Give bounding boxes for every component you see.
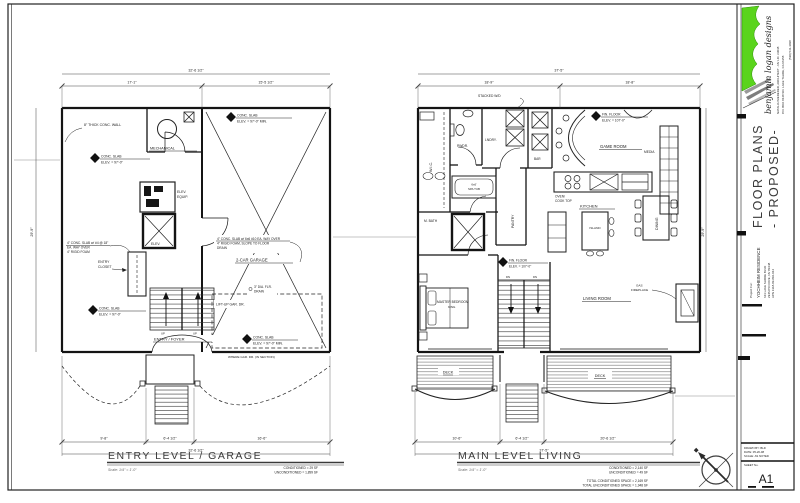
- label-slab1-title: CONC. SLAB: [101, 155, 122, 159]
- island: ISLAND: [582, 212, 614, 256]
- main-area-4: TOTAL UNCONDITIONED SPACE = 1,948 SF: [582, 484, 648, 488]
- sheet-canvas: benjamin logan designs NATALIA WIEDERER,…: [0, 0, 800, 503]
- project-name: YOCHHEIM RESIDENCE: [756, 247, 761, 298]
- label-garage-note3: DRAIN: [217, 246, 228, 250]
- sheet-number: A1: [759, 472, 774, 486]
- label-stair-fin2: ELEV. = 107'-0": [509, 265, 531, 269]
- sink-icon: [463, 110, 473, 117]
- master-bedroom: MASTER BEDROOM KING: [419, 274, 469, 340]
- firm-credit: NATALIA WIEDERER, ARCHITECT - NV LIC. #3…: [776, 46, 780, 114]
- footer-mark-1: [748, 486, 756, 488]
- entry-level-plan: MECHANICAL ELEV. EQUIP. ELEV. ENTRY CLOS…: [30, 69, 344, 475]
- label-oven1: OVEN/: [555, 195, 565, 199]
- deck-left: DECK: [412, 356, 497, 400]
- nightstand-2: [419, 332, 427, 340]
- firm-address: P.O. BOX 8448 SO. LAKE TAHOE, CA 96158: [781, 55, 785, 114]
- north-arrow-icon: [694, 448, 733, 487]
- main-plan-title: MAIN LEVEL LIVING Scale: 1/4" = 1'-0" CO…: [457, 450, 700, 488]
- main-elevator: [452, 214, 484, 250]
- entry-closet: ENTRY CLOSET: [98, 252, 146, 296]
- main-dim-side: 29'-9": [701, 227, 705, 237]
- slab-flag-2-diamond: [88, 305, 98, 315]
- main-plan-dimensions: [413, 74, 707, 456]
- divider-tick-1: [737, 114, 746, 119]
- powder-room: PWDR.: [450, 110, 473, 148]
- label-slab2-title: CONC. SLAB: [99, 307, 120, 311]
- label-fin-floor2: ELEV. = 107'-0": [602, 119, 626, 123]
- cooktop-icon: [565, 176, 580, 190]
- label-pwdr: PWDR.: [457, 144, 468, 148]
- equip-block-1: [144, 186, 151, 196]
- dim-bottom-1: 9'-8": [100, 437, 108, 441]
- closet-arrowhead: [122, 268, 127, 272]
- label-garage: 2-CAR GARAGE: [236, 258, 268, 263]
- revision-bar-3: [738, 356, 750, 360]
- label-deck-right: DECK: [595, 374, 606, 378]
- sheet-title-line1: FLOOR PLANS: [751, 124, 765, 228]
- main-area-3: TOTAL CONDITIONED SPACE = 2,169 SF: [587, 479, 648, 483]
- label-spa1: 6x6': [471, 183, 477, 187]
- label-drain1: 3" DIA. FLR.: [254, 285, 272, 289]
- wic-room: W.I.C.: [420, 112, 444, 208]
- game-flag-diamond: [591, 111, 601, 121]
- label-entry-note2: EA. WAY OVER: [67, 246, 90, 250]
- fireplace-icon: [676, 284, 698, 322]
- dim-top-overall: 32'-6 1/2": [188, 69, 204, 73]
- dim-side: 29'-9": [30, 227, 34, 237]
- label-pantry: PANTRY: [511, 214, 515, 228]
- equip-block-3: [146, 199, 159, 207]
- main-stairs: FIN. FLOOR ELEV. = 107'-0" DN DN: [498, 257, 550, 348]
- project-label: Project For:: [749, 282, 753, 298]
- main-dim-top-right: 18'-8": [625, 81, 635, 85]
- toilet-icon: [456, 125, 464, 136]
- garage-annotations: CONC. SLAB ELEV. = 97'-0" MIN. 4" CONC. …: [214, 111, 302, 359]
- label-master1: MASTER BEDROOM: [437, 300, 469, 304]
- dim-top-left: 17'-1": [127, 81, 137, 85]
- label-dn-1: DN: [506, 275, 510, 279]
- nightstand-1: [419, 274, 427, 282]
- label-master2: KING: [448, 305, 456, 309]
- label-island: ISLAND: [589, 226, 601, 230]
- water-heater-icon: [158, 120, 177, 139]
- vanity-sink-1: [423, 173, 433, 180]
- label-section-note: WHERE GAR. DR. (IN SECTION): [228, 355, 275, 359]
- label-mechanical: MECHANICAL: [150, 147, 175, 151]
- dim-bottom-3: 16'-6": [257, 437, 267, 441]
- project-apn: APN 1318-09-810-044: [771, 269, 775, 298]
- label-elev-equip1: ELEV.: [177, 190, 186, 194]
- entry-plan-title: ENTRY LEVEL / GARAGE Scale: 1/4" = 1'-0"…: [107, 450, 344, 475]
- booth-seating: [556, 110, 585, 166]
- label-elev-equip2: EQUIP.: [177, 195, 188, 199]
- sheet-no-label: SHEET No.: [744, 463, 759, 467]
- label-kitchen: KITCHEN: [580, 204, 598, 209]
- hood-icon: [590, 174, 648, 190]
- main-plan-scale: Scale: 1/4" = 1'-0": [458, 468, 487, 472]
- label-elevator: ELEV.: [151, 242, 160, 246]
- label-up-1: UP: [161, 332, 165, 336]
- label-stacked-wd: STACKED W/D: [478, 94, 501, 98]
- label-mbath: M. BATH: [424, 219, 438, 223]
- firm-phone: (530) 541-3038: [788, 40, 792, 60]
- label-drain2: DRAIN: [254, 290, 265, 294]
- label-entry-note1: 4" CONC. SLAB w/ #4 @ 18": [67, 241, 108, 245]
- main-level-plan: W.I.C. PWDR. LNDRY. STACKED W/D BAR: [412, 69, 706, 488]
- slab-flag-1-diamond: [90, 153, 100, 163]
- interior-stairs: UP UP: [150, 288, 214, 336]
- bed-icon: [426, 288, 468, 328]
- label-slab2-elev: ELEV. = 97'-0": [99, 313, 122, 317]
- label-media: MEDIA: [644, 150, 655, 154]
- living-room: LIVING ROOM GAS FIREPLACE: [582, 284, 698, 323]
- revision-bar-1: [742, 304, 762, 307]
- label-bar: BAR: [534, 157, 541, 161]
- entry-area-1: CONDITIONED = 29 SF: [284, 466, 319, 470]
- label-garage-slab2-title: CONC. SLAB: [253, 336, 274, 340]
- main-dim-top-left: 18'-9": [484, 81, 494, 85]
- refrigerator-icon: [548, 212, 566, 252]
- label-wic: W.I.C.: [429, 162, 433, 172]
- label-deck-left: DECK: [443, 371, 454, 375]
- main-porch-stairs: [500, 355, 544, 422]
- label-fp2: FIREPLACE: [631, 288, 648, 292]
- label-dn-2: DN: [533, 275, 537, 279]
- logo-green-shape: [742, 6, 760, 91]
- bar-area: BAR: [532, 112, 548, 161]
- main-dim-bottom-3: 20'-6 1/2": [600, 437, 616, 441]
- footer-mark-2: [762, 486, 774, 488]
- label-spa2: SPA TUB: [468, 187, 480, 191]
- vanity-sink-2: [435, 173, 445, 180]
- main-dim-bottom-1: 10'-6": [452, 437, 462, 441]
- label-entry-note3: 4" RIGID FOAM: [67, 250, 90, 254]
- revision-bar-2: [742, 334, 766, 337]
- label-game-room: GAME ROOM: [600, 144, 627, 149]
- label-lift: LIFT-UP GAR. DR.: [216, 303, 245, 307]
- pantry: PANTRY: [511, 214, 515, 228]
- vent-icon: [184, 112, 194, 122]
- label-lndry: LNDRY.: [485, 138, 497, 142]
- divider-tick-2: [737, 231, 746, 236]
- label-garage-slab-elev: ELEV. = 97'-0" MIN.: [237, 120, 267, 124]
- info-scale: SCALE: AS NOTED: [744, 454, 769, 458]
- main-area-2: UNCONDITIONED = 49 SF: [609, 471, 648, 475]
- sheet-border: [8, 4, 794, 490]
- label-closet1: ENTRY: [98, 260, 110, 264]
- dim-bottom-2: 6'-4 1/2": [163, 437, 177, 441]
- dining-area: DINING: [635, 196, 677, 240]
- label-garage-note1: 4" CONC. SLAB w/ 6x6 #10 EA. WAY OVER: [217, 237, 281, 241]
- label-fin-floor1: FIN. FLOOR: [602, 113, 621, 117]
- deck-right: DECK: [542, 356, 675, 404]
- label-fp1: GAS: [636, 284, 643, 288]
- drawing-sheet: benjamin logan designs NATALIA WIEDERER,…: [0, 0, 800, 503]
- label-garage-slab-title: CONC. SLAB: [237, 114, 258, 118]
- label-garage-slab2-elev: ELEV. = 97'-0" MIN.: [253, 342, 283, 346]
- main-plan-title-text: MAIN LEVEL LIVING: [458, 450, 582, 462]
- headboard: [420, 286, 426, 330]
- mechanical-room: MECHANICAL: [149, 112, 197, 151]
- dim-top-right: 15'-5 1/2": [258, 81, 274, 85]
- equip-block-2: [154, 186, 163, 192]
- label-oven2: COOK TOP: [555, 199, 572, 203]
- label-wall-note: 8" THICK CONC. WALL: [84, 123, 121, 127]
- laundry-room: LNDRY. STACKED W/D: [478, 94, 524, 146]
- firm-name: benjamin logan designs: [763, 16, 773, 114]
- sheet-title-line2: - PROPOSED-: [767, 129, 781, 228]
- label-dining: DINING: [655, 217, 659, 230]
- title-block: benjamin logan designs NATALIA WIEDERER,…: [737, 6, 794, 488]
- entry-foyer: ENTRY / FOYER: [150, 335, 216, 352]
- main-area-1: CONDITIONED = 2,140 SF: [609, 466, 648, 470]
- label-living: LIVING ROOM: [583, 296, 611, 301]
- entry-plan-title-text: ENTRY LEVEL / GARAGE: [108, 450, 262, 462]
- garage-area: [206, 112, 326, 348]
- label-garage-note2: 4" RIGID FOAM, SLOPE TO FLOOR: [217, 242, 270, 246]
- main-dim-top-overall: 37'-5": [554, 69, 564, 73]
- title-block-footer: DRAWN BY: BLD DATE: 05-20-08 SCALE: AS N…: [741, 443, 794, 488]
- game-room: FIN. FLOOR ELEV. = 107'-0" GAME ROOM: [591, 110, 652, 150]
- label-stair-fin1: FIN. FLOOR: [509, 259, 528, 263]
- entry-area-2: UNCONDITIONED = 1,899 SF: [275, 471, 319, 475]
- label-slab1-elev: ELEV. = 97'-0": [101, 161, 124, 165]
- label-closet2: CLOSET: [98, 265, 112, 269]
- main-dim-bottom-2: 6'-4 1/2": [515, 437, 529, 441]
- entry-porch: [62, 355, 330, 424]
- entry-plan-scale: Scale: 1/4" = 1'-0": [108, 468, 137, 472]
- label-up-2: UP: [193, 332, 197, 336]
- elevator-equip-room: ELEV. EQUIP.: [140, 182, 188, 212]
